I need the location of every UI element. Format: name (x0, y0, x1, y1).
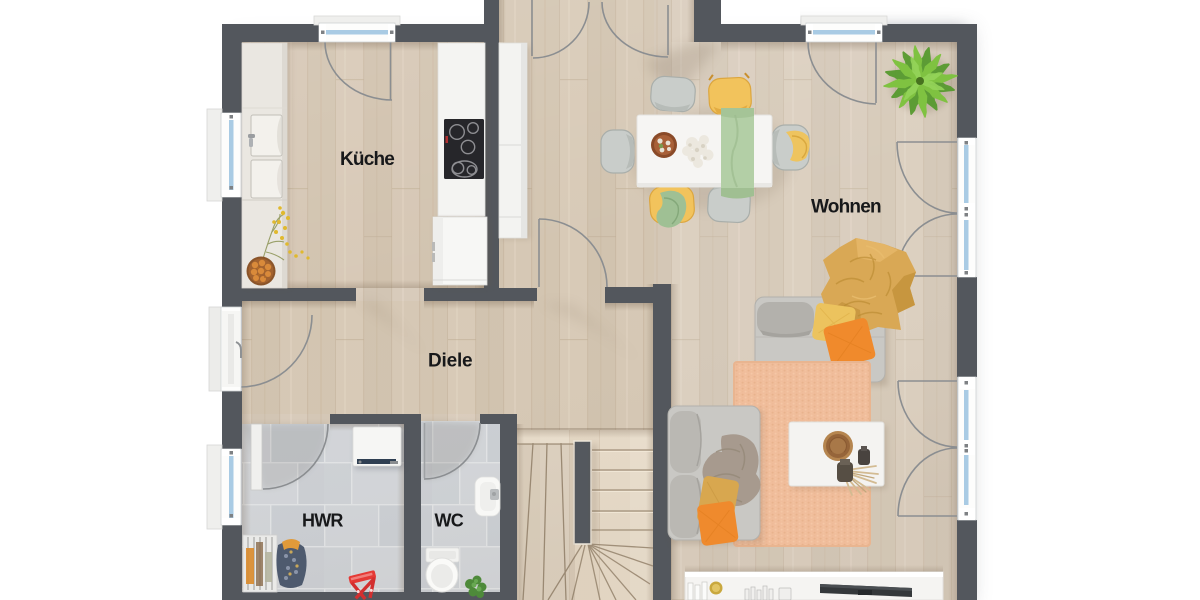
svg-text:WC: WC (435, 511, 464, 531)
svg-text:HWR: HWR (302, 511, 343, 531)
svg-text:Diele: Diele (428, 351, 472, 372)
svg-text:Küche: Küche (340, 149, 394, 170)
svg-text:Wohnen: Wohnen (811, 197, 881, 218)
